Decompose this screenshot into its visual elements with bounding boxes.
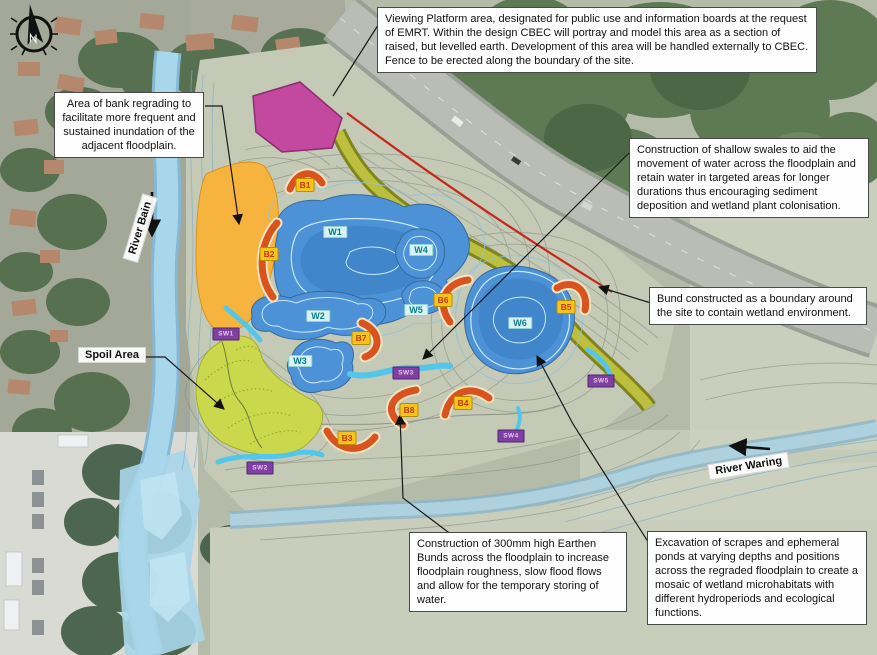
- callout-viewing-platform: Viewing Platform area, designated for pu…: [377, 7, 817, 73]
- badge-b4: B4: [454, 396, 473, 410]
- label-w2: W2: [306, 310, 330, 322]
- badge-sw1: SW1: [213, 328, 240, 341]
- badge-b2: B2: [260, 247, 279, 261]
- label-w1: W1: [323, 226, 347, 238]
- badge-b3: B3: [338, 431, 357, 445]
- label-w4: W4: [409, 244, 433, 256]
- badge-sw3: SW3: [393, 367, 420, 380]
- wetland-design-map: Viewing Platform area, designated for pu…: [0, 0, 877, 655]
- callout-scrapes: Excavation of scrapes and ephemeral pond…: [647, 531, 867, 625]
- badge-b1: B1: [296, 178, 315, 192]
- callout-bank-regrading: Area of bank regrading to facilitate mor…: [54, 92, 204, 158]
- badge-b6: B6: [434, 293, 453, 307]
- callout-bund-boundary: Bund constructed as a boundary around th…: [649, 287, 867, 325]
- label-w3: W3: [288, 355, 312, 367]
- badge-sw5: SW5: [588, 375, 615, 388]
- label-w5: W5: [404, 304, 428, 316]
- badge-sw4: SW4: [498, 430, 525, 443]
- badge-b7: B7: [352, 331, 371, 345]
- callout-swales: Construction of shallow swales to aid th…: [629, 138, 869, 218]
- badge-b8: B8: [400, 403, 419, 417]
- badge-b5: B5: [557, 300, 576, 314]
- spoil-area-label: Spoil Area: [78, 347, 146, 363]
- label-w6: W6: [508, 317, 532, 329]
- callout-earthen-bunds: Construction of 300mm high Earthen Bunds…: [409, 532, 627, 612]
- badge-sw2: SW2: [247, 462, 274, 475]
